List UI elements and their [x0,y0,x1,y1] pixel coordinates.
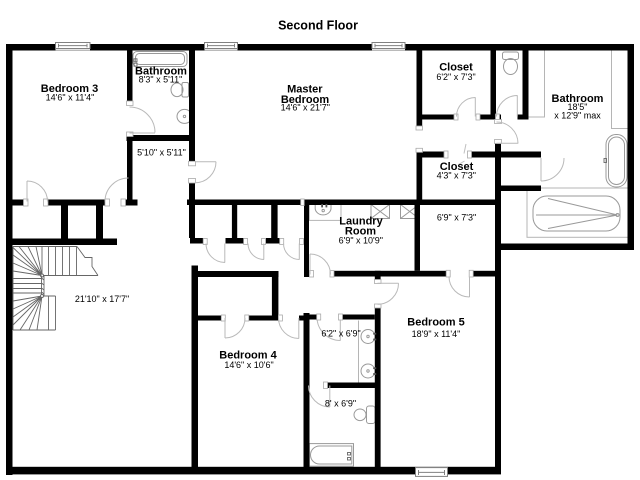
svg-text:5'10" x 5'11": 5'10" x 5'11" [137,148,186,158]
svg-text:x 12'9" max: x 12'9" max [554,111,601,121]
svg-text:18'9" x 11'4": 18'9" x 11'4" [412,329,461,339]
svg-text:Second Floor: Second Floor [278,19,358,33]
svg-text:Bedroom 5: Bedroom 5 [407,317,464,329]
svg-text:6'9" x 10'9": 6'9" x 10'9" [339,236,383,246]
svg-text:14'6" x 11'4": 14'6" x 11'4" [46,93,95,103]
svg-text:21'10" x 17'7": 21'10" x 17'7" [75,294,129,304]
svg-text:14'6" x 10'6": 14'6" x 10'6" [224,360,273,370]
svg-text:4'3" x 7'3": 4'3" x 7'3" [437,171,476,181]
svg-text:14'6" x 21'7": 14'6" x 21'7" [281,103,330,113]
svg-text:6'2" x 6'9": 6'2" x 6'9" [321,329,360,339]
svg-text:6'9" x 7'3": 6'9" x 7'3" [437,213,476,223]
svg-text:8'3" x 5'11": 8'3" x 5'11" [139,75,183,85]
svg-text:8' x 6'9": 8' x 6'9" [325,399,356,409]
svg-text:6'2" x 7'3": 6'2" x 7'3" [436,72,475,82]
